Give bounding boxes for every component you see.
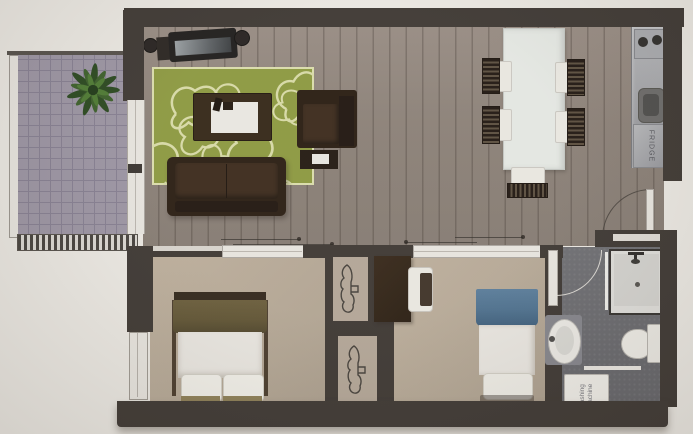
desk-chair-back xyxy=(420,273,432,306)
tv-icon xyxy=(168,28,238,63)
desk xyxy=(374,256,411,322)
basin-bowl xyxy=(555,326,574,355)
sliding-door-bedroom-1 xyxy=(222,245,305,258)
shower-drain xyxy=(635,282,640,287)
burner-icon xyxy=(652,35,662,45)
dining-chair xyxy=(482,106,500,144)
armchair xyxy=(297,90,357,148)
speaker-icon xyxy=(234,30,250,46)
sofa-front xyxy=(175,201,278,212)
sink-basin xyxy=(643,94,659,116)
dining-chair xyxy=(567,108,585,146)
slide-mark xyxy=(455,237,523,238)
slide-mark-dot xyxy=(521,235,525,239)
decor-item xyxy=(223,102,233,110)
kitchen-sink xyxy=(638,88,665,123)
wall-right-lower xyxy=(660,230,677,407)
sofa xyxy=(167,157,286,216)
sliding-door-bedroom-2 xyxy=(413,245,542,258)
dining-chair xyxy=(482,58,500,94)
wardrobe-nook-1 xyxy=(333,257,368,321)
burner-icon xyxy=(638,37,648,47)
window-line xyxy=(137,333,138,397)
armchair-back xyxy=(339,96,354,146)
slide-mark-dot xyxy=(404,240,408,244)
shower-glass xyxy=(605,252,608,310)
bed-mattress xyxy=(178,332,262,378)
wall-left-lower xyxy=(127,246,153,332)
side-table-card xyxy=(312,154,329,164)
slide-mark xyxy=(405,242,477,243)
sofa-cushion-divider xyxy=(226,164,227,198)
towel-rail xyxy=(584,366,641,370)
dining-table xyxy=(503,28,565,170)
side-table xyxy=(300,150,338,169)
bed-duvet-olive xyxy=(173,300,267,333)
bathroom-window-strip xyxy=(613,234,665,241)
floor-plan: FRIDGE xyxy=(0,0,693,434)
door-handle xyxy=(128,164,142,173)
desk-chair xyxy=(408,267,433,312)
wardrobe-nook-2 xyxy=(338,336,377,404)
coffee-table xyxy=(193,93,272,141)
shower-head-icon xyxy=(631,259,640,264)
wall-left-upper xyxy=(123,10,144,101)
dining-chair xyxy=(567,59,585,96)
wall-divider-left xyxy=(150,251,223,257)
slide-mark xyxy=(221,239,301,240)
single-bed-mattress xyxy=(479,325,535,375)
door-track-line xyxy=(223,251,302,252)
tv-screen xyxy=(175,37,232,56)
wall-right-upper xyxy=(663,8,682,181)
door-track-line xyxy=(414,251,539,252)
slide-mark-dot xyxy=(297,237,301,241)
wall-bottom xyxy=(117,401,668,427)
fridge-label: FRIDGE xyxy=(647,130,654,162)
balcony-hatched-edge xyxy=(17,234,138,251)
armchair-seat xyxy=(303,104,339,144)
wardrobe-symbol-icon xyxy=(344,343,370,397)
dining-chair xyxy=(507,183,548,198)
faucet-icon xyxy=(549,336,555,342)
bedroom-1-window xyxy=(129,332,148,400)
balcony-sliding-door xyxy=(127,100,145,234)
wardrobe-symbol-icon xyxy=(337,262,363,316)
single-bed xyxy=(476,289,538,403)
double-bed xyxy=(172,292,268,404)
wall-top xyxy=(124,8,684,27)
single-bed-duvet-blue xyxy=(476,289,538,326)
plant-icon xyxy=(62,58,124,120)
wash-basin-unit xyxy=(545,315,582,365)
